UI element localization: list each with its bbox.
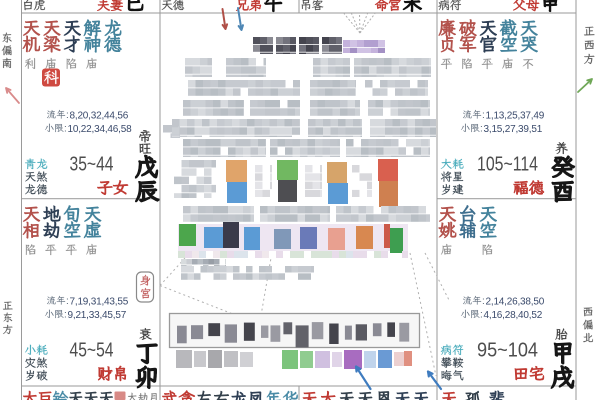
svg-text::: : (66, 110, 69, 121)
svg-text:10,22,34,46,58: 10,22,34,46,58 (68, 124, 133, 135)
svg-text:105~114: 105~114 (477, 154, 538, 176)
svg-text:9,21,33,45,57: 9,21,33,45,57 (68, 310, 127, 321)
svg-text::: : (480, 310, 483, 321)
svg-text:95~104: 95~104 (477, 340, 538, 362)
svg-text::: : (482, 110, 485, 121)
svg-text:2,14,26,38,50: 2,14,26,38,50 (486, 297, 545, 308)
svg-text:7,19,31,43,55: 7,19,31,43,55 (70, 297, 129, 308)
svg-text::: : (482, 296, 485, 307)
svg-text::: : (64, 310, 67, 321)
svg-text:35~44: 35~44 (70, 154, 114, 176)
svg-text:4,16,28,40,52: 4,16,28,40,52 (484, 310, 543, 321)
svg-text:45~54: 45~54 (70, 340, 114, 362)
svg-text::: : (480, 124, 483, 135)
svg-text:8,20,32,44,56: 8,20,32,44,56 (70, 111, 129, 122)
svg-text:3,15,27,39,51: 3,15,27,39,51 (484, 124, 543, 135)
svg-text::: : (66, 296, 69, 307)
svg-text:1,13,25,37,49: 1,13,25,37,49 (486, 111, 545, 122)
svg-text::: : (64, 124, 67, 135)
